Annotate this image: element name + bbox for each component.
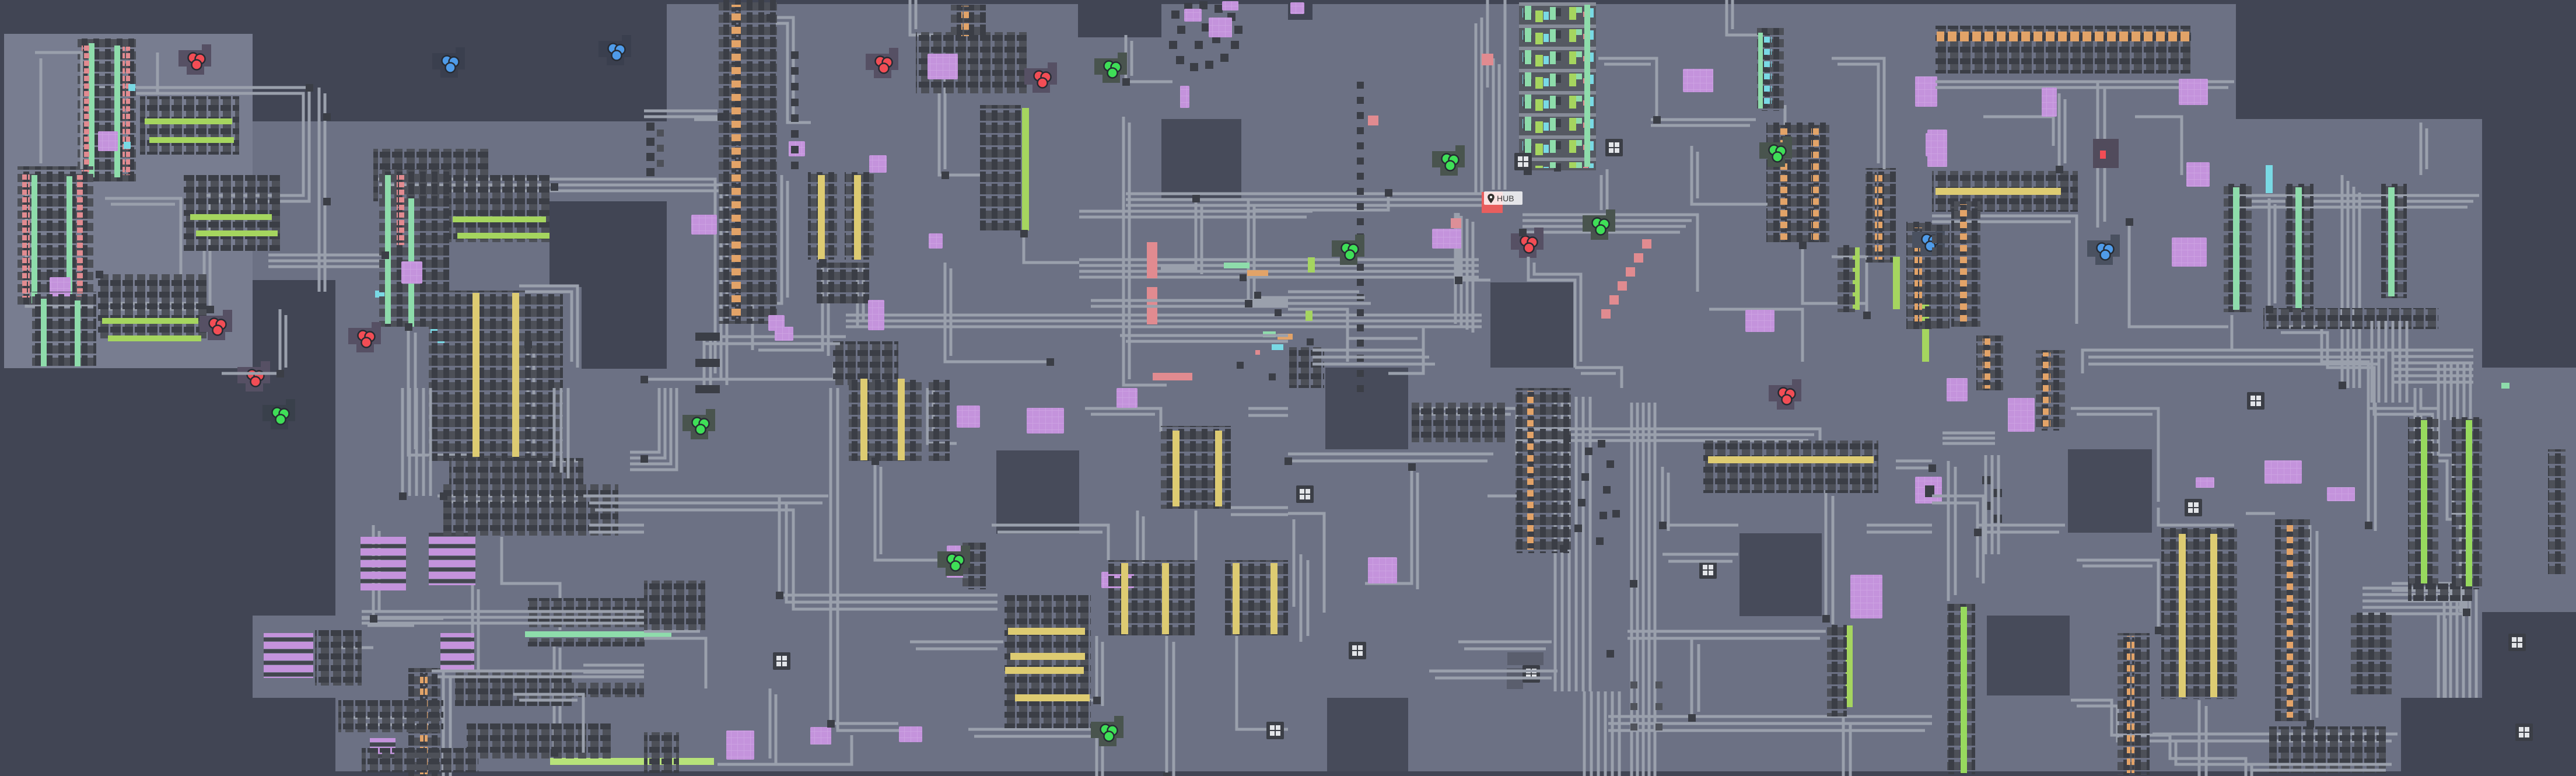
- svg-text:HUB: HUB: [1497, 194, 1514, 203]
